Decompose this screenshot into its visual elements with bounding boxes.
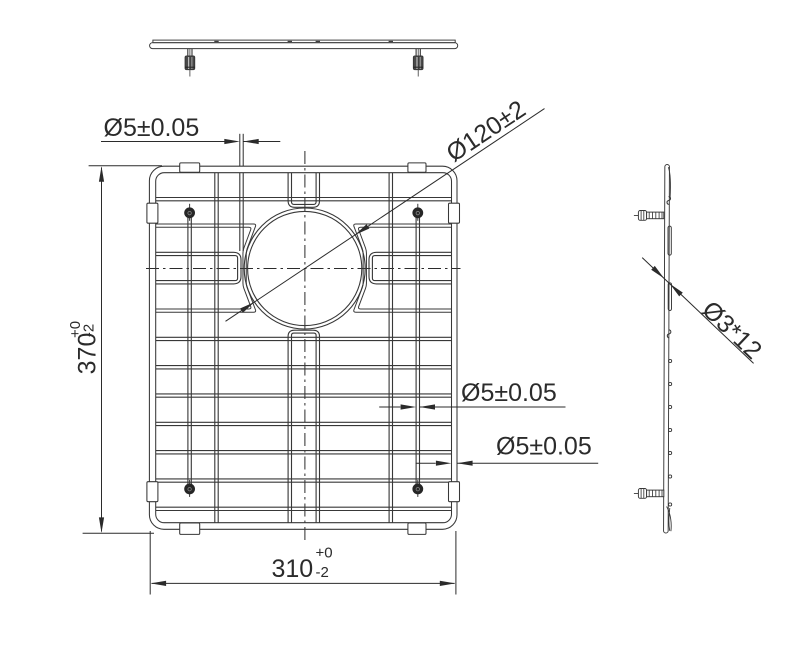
- svg-text:Ø3*12: Ø3*12: [696, 296, 767, 365]
- svg-text:-2: -2: [81, 324, 98, 337]
- svg-text:Ø5±0.05: Ø5±0.05: [496, 433, 592, 461]
- svg-text:310: 310: [272, 555, 314, 583]
- svg-text:Ø5±0.05: Ø5±0.05: [104, 114, 200, 142]
- svg-text:+0: +0: [316, 545, 333, 562]
- svg-text:Ø120±2: Ø120±2: [441, 95, 530, 168]
- svg-text:-2: -2: [316, 564, 329, 581]
- svg-text:Ø5±0.05: Ø5±0.05: [461, 379, 557, 407]
